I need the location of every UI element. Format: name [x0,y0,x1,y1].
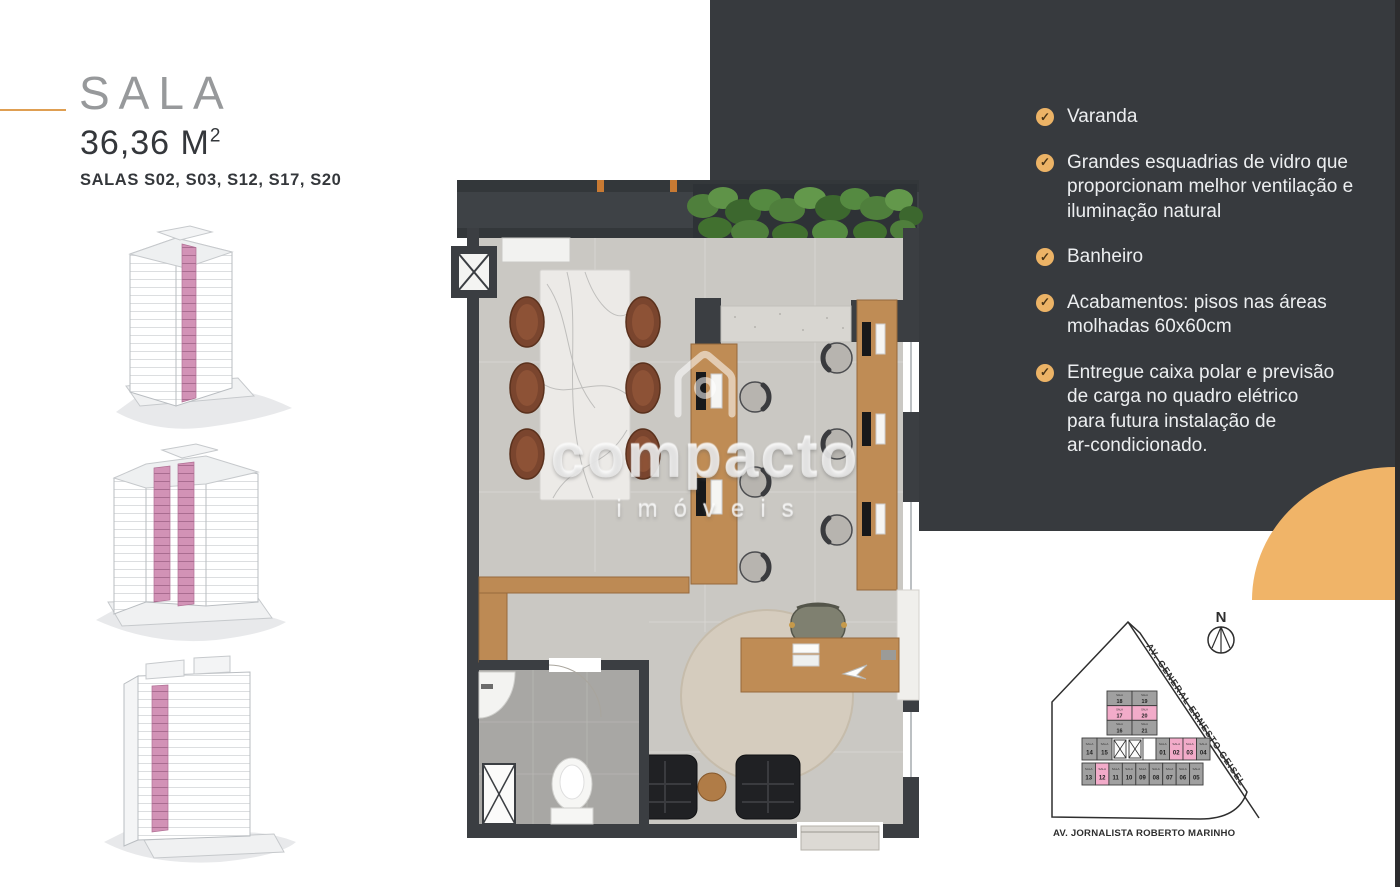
svg-text:08: 08 [1153,776,1160,782]
svg-text:12: 12 [1099,776,1106,782]
site-key-plan: AV. GENERAL ERNESTO GEISELAV. JORNALISTA… [1040,596,1360,854]
feature-text: Banheiro [1067,245,1143,270]
svg-text:SALA: SALA [1159,742,1167,746]
feature-item: ✓Entregue caixa polar e previsão de carg… [1036,361,1368,459]
check-icon: ✓ [1036,294,1054,312]
feature-item: ✓Varanda [1036,105,1368,130]
svg-text:13: 13 [1085,776,1092,782]
street-label-bottom: AV. JORNALISTA ROBERTO MARINHO [1053,828,1236,839]
svg-text:SALA: SALA [1085,767,1093,771]
check-icon: ✓ [1036,248,1054,266]
svg-text:SALA: SALA [1141,693,1148,697]
elevator-shaft-icon [451,246,497,298]
svg-text:SALA: SALA [1101,742,1109,746]
shaft-icon [483,764,515,824]
check-icon: ✓ [1036,108,1054,126]
right-edge-strip [1395,0,1400,887]
svg-text:15: 15 [1101,751,1108,757]
brochure-page: { "header": { "title": "SALA", "area_val… [0,0,1400,887]
svg-text:03: 03 [1186,751,1193,757]
svg-text:SALA: SALA [1112,767,1120,771]
svg-text:SALA: SALA [1116,707,1123,711]
floor-plan [445,172,937,864]
svg-text:SALA: SALA [1166,767,1174,771]
svg-text:17: 17 [1117,714,1123,720]
executive-desk [741,638,899,692]
svg-text:SALA: SALA [1125,767,1133,771]
feature-item: ✓Acabamentos: pisos nas áreas molhadas 6… [1036,291,1368,340]
side-table [698,773,726,801]
entry-door [797,822,883,850]
svg-text:05: 05 [1193,776,1200,782]
area-superscript: 2 [210,126,222,147]
feature-text: Grandes esquadrias de vidro que proporci… [1067,151,1353,225]
door-marker [597,180,604,192]
meeting-table [540,270,630,500]
feature-text: Varanda [1067,105,1137,130]
check-icon: ✓ [1036,364,1054,382]
building-rendering-2 [84,434,298,646]
svg-text:SALA: SALA [1152,767,1160,771]
svg-text:02: 02 [1173,751,1180,757]
feature-item: ✓Grandes esquadrias de vidro que proporc… [1036,151,1368,225]
highlighted-units-strip [178,462,194,606]
svg-text:04: 04 [1200,751,1207,757]
feature-item: ✓Banheiro [1036,245,1368,270]
svg-text:SALA: SALA [1186,742,1194,746]
feature-text: Acabamentos: pisos nas áreas molhadas 60… [1067,291,1327,340]
svg-text:SALA: SALA [1098,767,1106,771]
toilet-icon [551,758,593,824]
highlighted-units-strip [154,466,170,602]
svg-text:09: 09 [1139,776,1146,782]
check-icon: ✓ [1036,154,1054,172]
svg-text:SALA: SALA [1139,767,1147,771]
svg-text:SALA: SALA [1192,767,1200,771]
accent-line [0,109,66,111]
svg-text:01: 01 [1159,751,1166,757]
highlighted-units-strip [182,244,196,402]
compass-letter: N [1216,609,1227,626]
svg-text:10: 10 [1126,776,1133,782]
workstation-desk-right [857,300,897,590]
features-list: ✓Varanda✓Grandes esquadrias de vidro que… [1036,105,1368,480]
highlighted-units-strip [152,685,168,832]
svg-text:SALA: SALA [1116,693,1123,697]
svg-text:14: 14 [1086,751,1093,757]
credenza [502,238,570,262]
building-rendering-3 [88,644,302,872]
units-subtitle: SALAS S02, S03, S12, S17, S20 [80,171,341,190]
svg-text:18: 18 [1117,699,1123,705]
workstation-desk-middle [691,344,737,584]
svg-text:19: 19 [1142,699,1148,705]
svg-text:SALA: SALA [1086,742,1094,746]
svg-text:06: 06 [1180,776,1187,782]
window-ledge [897,590,919,700]
svg-text:21: 21 [1142,728,1148,734]
page-title: SALA [79,66,233,120]
area-label: 36,36 M2 [80,124,221,163]
svg-text:20: 20 [1142,714,1148,720]
bathroom [479,658,649,836]
svg-text:SALA: SALA [1172,742,1180,746]
svg-text:16: 16 [1117,728,1123,734]
svg-text:SALA: SALA [1179,767,1187,771]
door-marker [670,180,677,192]
svg-text:SALA: SALA [1141,722,1148,726]
svg-text:SALA: SALA [1116,722,1123,726]
svg-text:SALA: SALA [1141,707,1148,711]
area-value: 36,36 M [80,124,210,162]
svg-text:11: 11 [1112,776,1119,782]
feature-text: Entregue caixa polar e previsão de carga… [1067,361,1334,459]
svg-text:SALA: SALA [1199,742,1207,746]
svg-text:07: 07 [1166,776,1173,782]
building-rendering-1 [96,216,306,440]
